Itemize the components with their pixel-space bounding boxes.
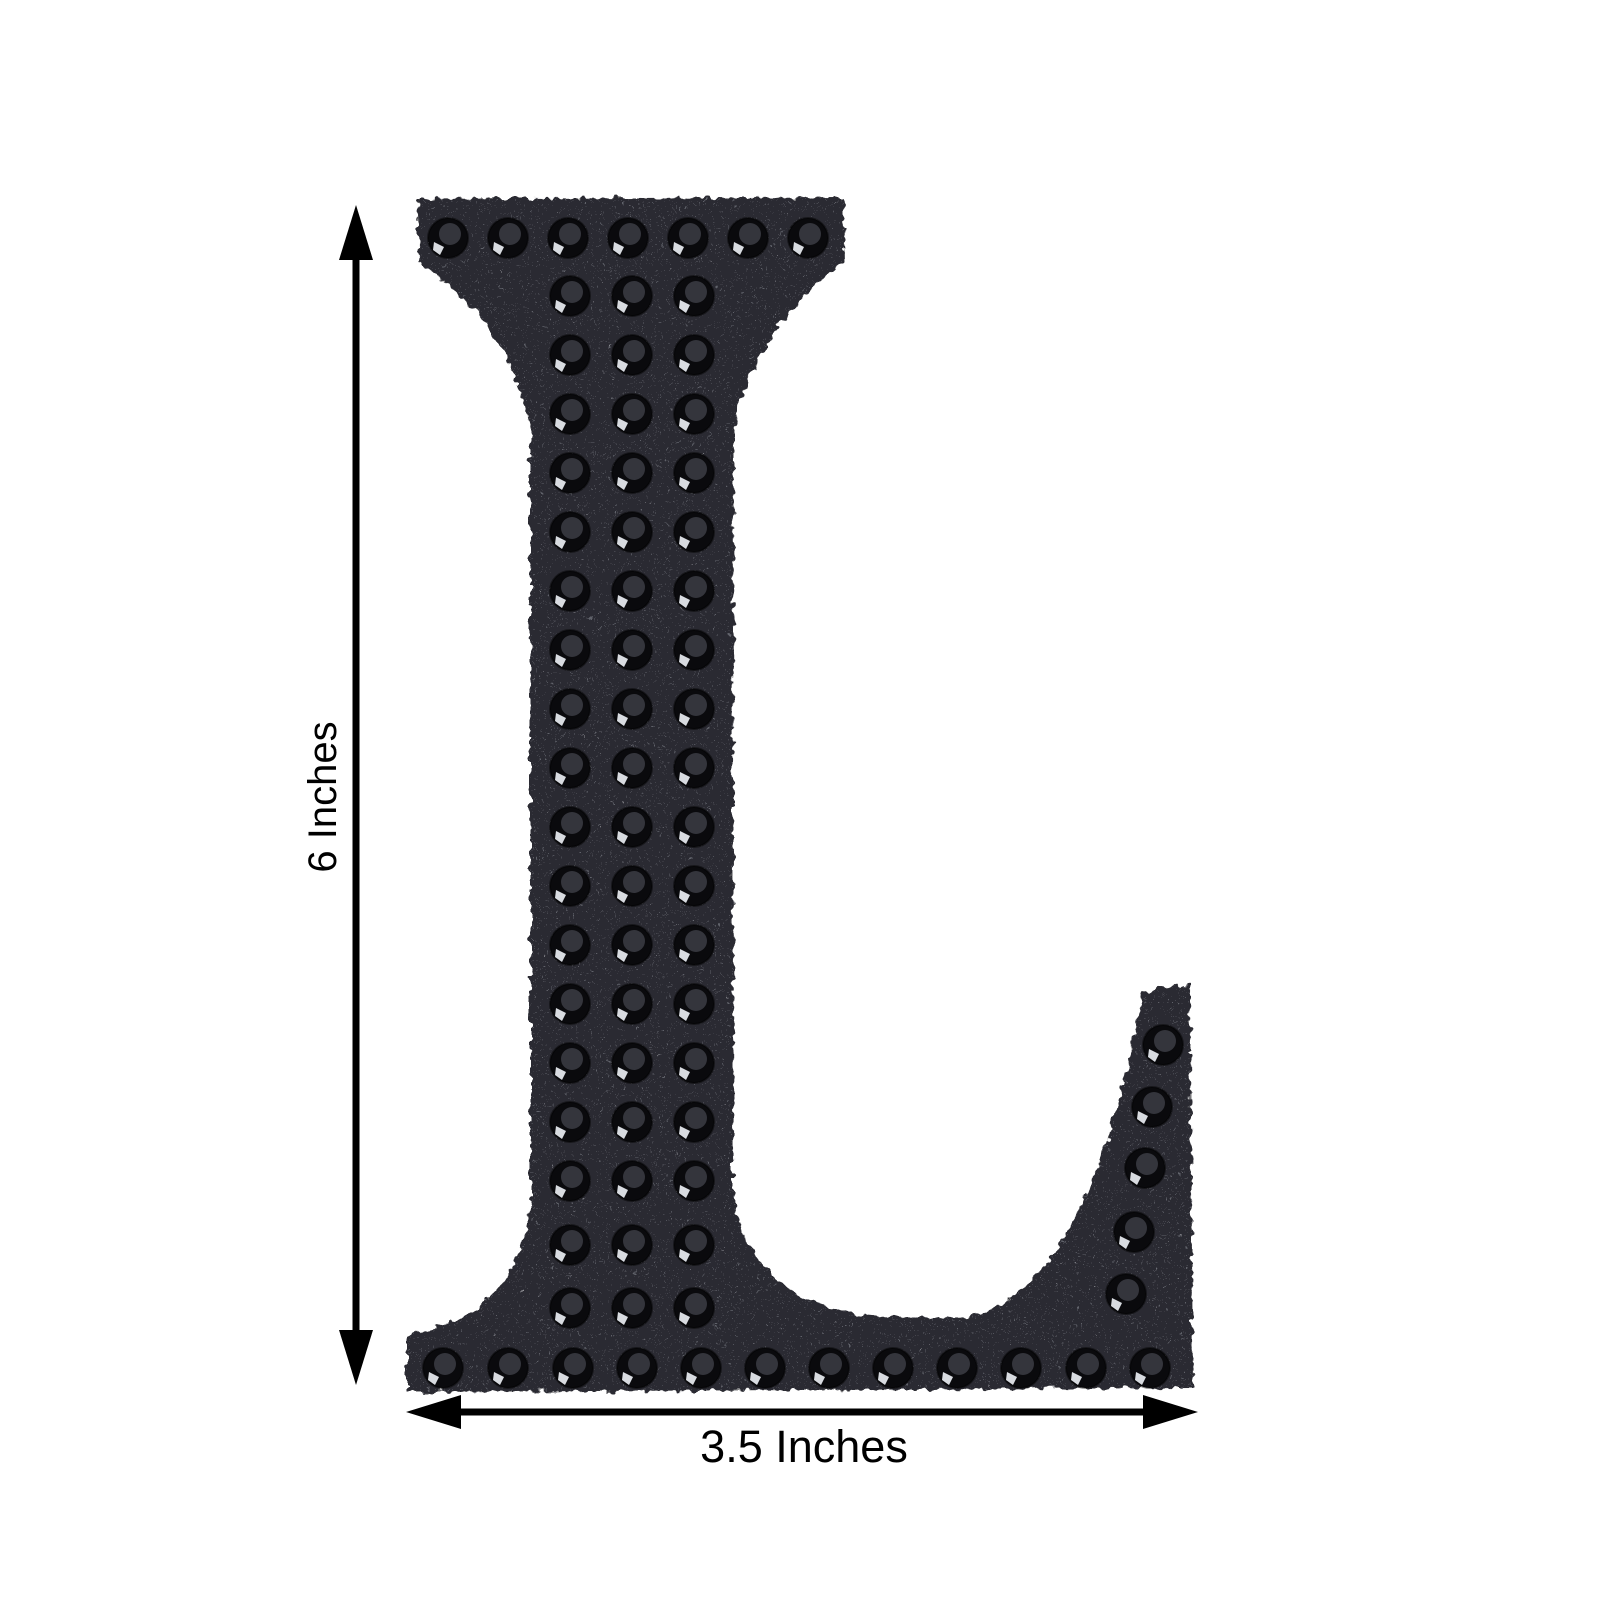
rhinestone	[550, 1225, 590, 1265]
rhinestone	[674, 925, 714, 965]
rhinestone	[674, 335, 714, 375]
arrowhead-left-icon	[406, 1395, 461, 1429]
rhinestone	[1132, 1087, 1172, 1127]
rhinestone	[788, 218, 828, 258]
rhinestone	[1125, 1148, 1165, 1188]
letter-L-graphic	[380, 170, 1225, 1420]
rhinestone	[550, 630, 590, 670]
rhinestone	[728, 218, 768, 258]
rhinestone	[612, 571, 652, 611]
rhinestone	[809, 1348, 849, 1388]
rhinestone	[674, 984, 714, 1024]
rhinestone	[550, 866, 590, 906]
rhinestone	[550, 276, 590, 316]
rhinestone	[674, 1043, 714, 1083]
rhinestone	[617, 1348, 657, 1388]
rhinestone	[681, 1348, 721, 1388]
rhinestone	[937, 1348, 977, 1388]
rhinestone	[550, 984, 590, 1024]
rhinestone	[674, 748, 714, 788]
rhinestone	[612, 453, 652, 493]
rhinestone	[674, 1102, 714, 1142]
rhinestone	[674, 571, 714, 611]
rhinestone	[550, 807, 590, 847]
rhinestone	[1130, 1348, 1170, 1388]
rhinestone	[612, 1161, 652, 1201]
rhinestone	[674, 453, 714, 493]
rhinestone	[550, 1043, 590, 1083]
rhinestone	[550, 571, 590, 611]
rhinestone	[674, 866, 714, 906]
rhinestone	[423, 1348, 463, 1388]
rhinestone	[1106, 1274, 1146, 1314]
rhinestone	[674, 276, 714, 316]
rhinestone	[550, 689, 590, 729]
rhinestone	[550, 925, 590, 965]
rhinestone	[612, 866, 652, 906]
rhinestone	[674, 394, 714, 434]
rhinestone	[668, 218, 708, 258]
letter-glitter-body	[380, 170, 1225, 1420]
rhinestone	[612, 807, 652, 847]
rhinestone	[608, 218, 648, 258]
rhinestone	[550, 335, 590, 375]
product-image: 6 Inches 3.5 Inches	[0, 0, 1600, 1600]
rhinestone	[612, 1288, 652, 1328]
rhinestone	[1114, 1212, 1154, 1252]
rhinestone	[550, 1288, 590, 1328]
height-dimension-label: 6 Inches	[301, 721, 345, 872]
rhinestone	[612, 630, 652, 670]
arrowhead-down-icon	[339, 1330, 373, 1385]
rhinestone	[674, 1161, 714, 1201]
rhinestone	[550, 512, 590, 552]
rhinestone	[674, 1225, 714, 1265]
rhinestone	[612, 276, 652, 316]
rhinestone	[1001, 1348, 1041, 1388]
rhinestone	[428, 218, 468, 258]
rhinestone	[548, 218, 588, 258]
rhinestone	[488, 1348, 528, 1388]
letter-dimensions-figure: 6 Inches 3.5 Inches	[0, 0, 1600, 1600]
rhinestone	[612, 984, 652, 1024]
rhinestone	[674, 630, 714, 670]
rhinestone	[612, 1225, 652, 1265]
rhinestone	[550, 394, 590, 434]
rhinestone	[612, 335, 652, 375]
rhinestone	[674, 689, 714, 729]
rhinestone	[612, 512, 652, 552]
rhinestone	[550, 1102, 590, 1142]
rhinestone	[550, 748, 590, 788]
rhinestone	[612, 689, 652, 729]
rhinestone	[612, 394, 652, 434]
rhinestone	[612, 1102, 652, 1142]
rhinestone	[612, 925, 652, 965]
rhinestone	[550, 453, 590, 493]
width-dimension-label: 3.5 Inches	[700, 1421, 908, 1472]
rhinestone	[550, 1161, 590, 1201]
rhinestone	[553, 1348, 593, 1388]
rhinestone	[674, 807, 714, 847]
arrowhead-right-icon	[1143, 1395, 1198, 1429]
rhinestone	[612, 1043, 652, 1083]
rhinestone	[674, 1288, 714, 1328]
rhinestone	[612, 748, 652, 788]
glitter-sparkle-layer	[380, 170, 1225, 1420]
rhinestone	[873, 1348, 913, 1388]
rhinestone	[745, 1348, 785, 1388]
rhinestone	[488, 218, 528, 258]
rhinestone	[674, 512, 714, 552]
arrowhead-up-icon	[339, 205, 373, 260]
rhinestone	[1143, 1025, 1183, 1065]
rhinestone	[1066, 1348, 1106, 1388]
